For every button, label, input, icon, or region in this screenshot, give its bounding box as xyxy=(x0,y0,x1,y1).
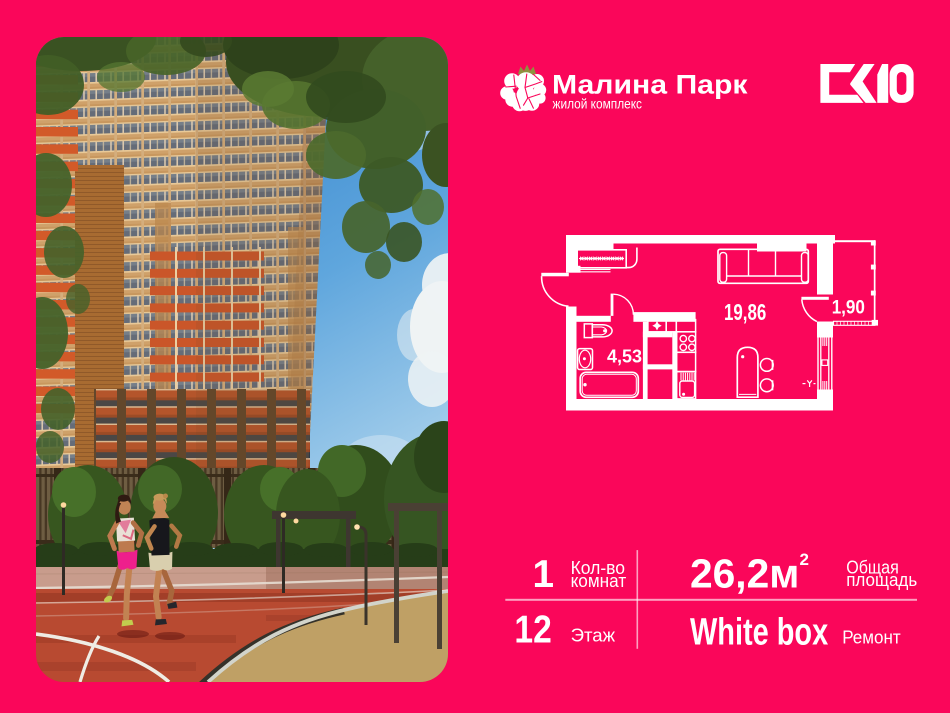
svg-text:1,90: 1,90 xyxy=(832,297,865,319)
svg-text:комнат: комнат xyxy=(571,571,627,591)
svg-text:Малина Парк: Малина Парк xyxy=(552,69,748,99)
svg-text:Этаж: Этаж xyxy=(571,625,616,645)
svg-text:26,2м: 26,2м xyxy=(690,551,799,597)
svg-text:жилой комплекс: жилой комплекс xyxy=(553,97,643,112)
svg-text:19,86: 19,86 xyxy=(724,299,766,325)
svg-text:Ремонт: Ремонт xyxy=(842,628,901,648)
svg-text:площадь: площадь xyxy=(846,570,917,590)
svg-text:White box: White box xyxy=(690,612,828,654)
svg-text:12: 12 xyxy=(514,608,551,651)
svg-text:2: 2 xyxy=(800,550,809,569)
svg-text:1: 1 xyxy=(532,553,554,596)
svg-text:4,53: 4,53 xyxy=(607,345,642,366)
